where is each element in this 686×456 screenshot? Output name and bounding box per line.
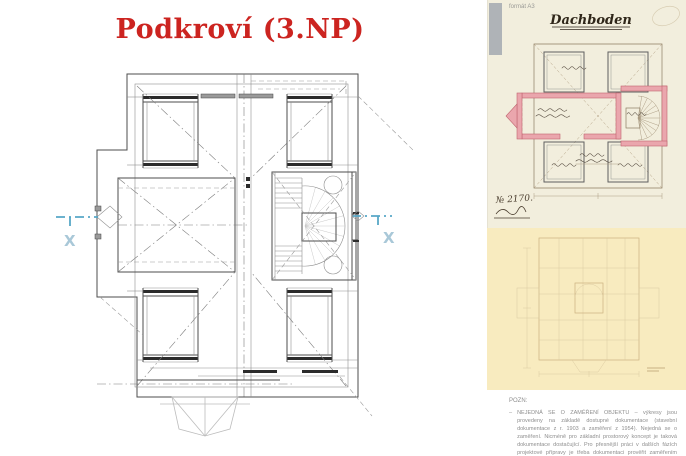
section-marker-left: X	[56, 217, 98, 250]
note-heading: POZN:	[509, 398, 677, 404]
historic-scan-faded	[487, 228, 686, 390]
spiral-staircase	[272, 172, 359, 280]
sheet-title: Dachboden	[549, 13, 632, 30]
faded-plan-drawing	[487, 228, 686, 390]
dimension-line	[534, 193, 662, 199]
section-label-left-x: X	[64, 232, 76, 250]
attic-floorplan-drawing: X X	[0, 0, 480, 456]
historic-stair-fan	[626, 96, 660, 140]
screenshot-root: Podkroví (3.NP)	[0, 0, 686, 456]
note-text: NEJEDNÁ SE O ZAMĚŘENÍ OBJEKTU – výkresy …	[517, 410, 677, 456]
floorplan-panel: Podkroví (3.NP)	[0, 0, 480, 456]
note-bullet: –	[509, 410, 512, 456]
reference-scans-panel: Dachboden	[487, 0, 686, 456]
sheet-title-text: Dachboden	[549, 13, 632, 28]
format-label: formát A3	[509, 4, 535, 10]
corridor-axis	[201, 74, 346, 397]
dormer-room-bottom-left	[143, 288, 198, 362]
rubber-stamp	[650, 3, 682, 29]
dormer-room-top-left	[143, 94, 198, 168]
central-room	[95, 178, 250, 272]
note-block: POZN: – NEJEDNÁ SE O ZAMĚŘENÍ OBJEKTU – …	[509, 398, 677, 456]
plan-number-text: № 2170.	[495, 193, 534, 206]
scan-margin-bar	[489, 3, 502, 55]
section-label-right-x: X	[383, 229, 395, 247]
historic-scan-dachboden: Dachboden	[487, 0, 686, 228]
bay-window	[160, 397, 250, 436]
wall-connector-lines	[127, 97, 358, 360]
bottom-walls	[97, 368, 358, 384]
historic-corner-rooms	[544, 52, 648, 182]
note-item: – NEJEDNÁ SE O ZAMĚŘENÍ OBJEKTU – výkres…	[509, 410, 677, 456]
historic-room-labels	[536, 67, 646, 167]
masonry-walls	[506, 86, 667, 146]
dachboden-plan-drawing: Dachboden	[488, 0, 686, 228]
outer-walls	[97, 74, 358, 397]
dormer-room-bottom-right	[287, 288, 332, 362]
signature-squiggle	[494, 206, 530, 218]
handwritten-number: № 2170.	[494, 193, 533, 218]
dormer-room-top-right	[287, 94, 332, 168]
